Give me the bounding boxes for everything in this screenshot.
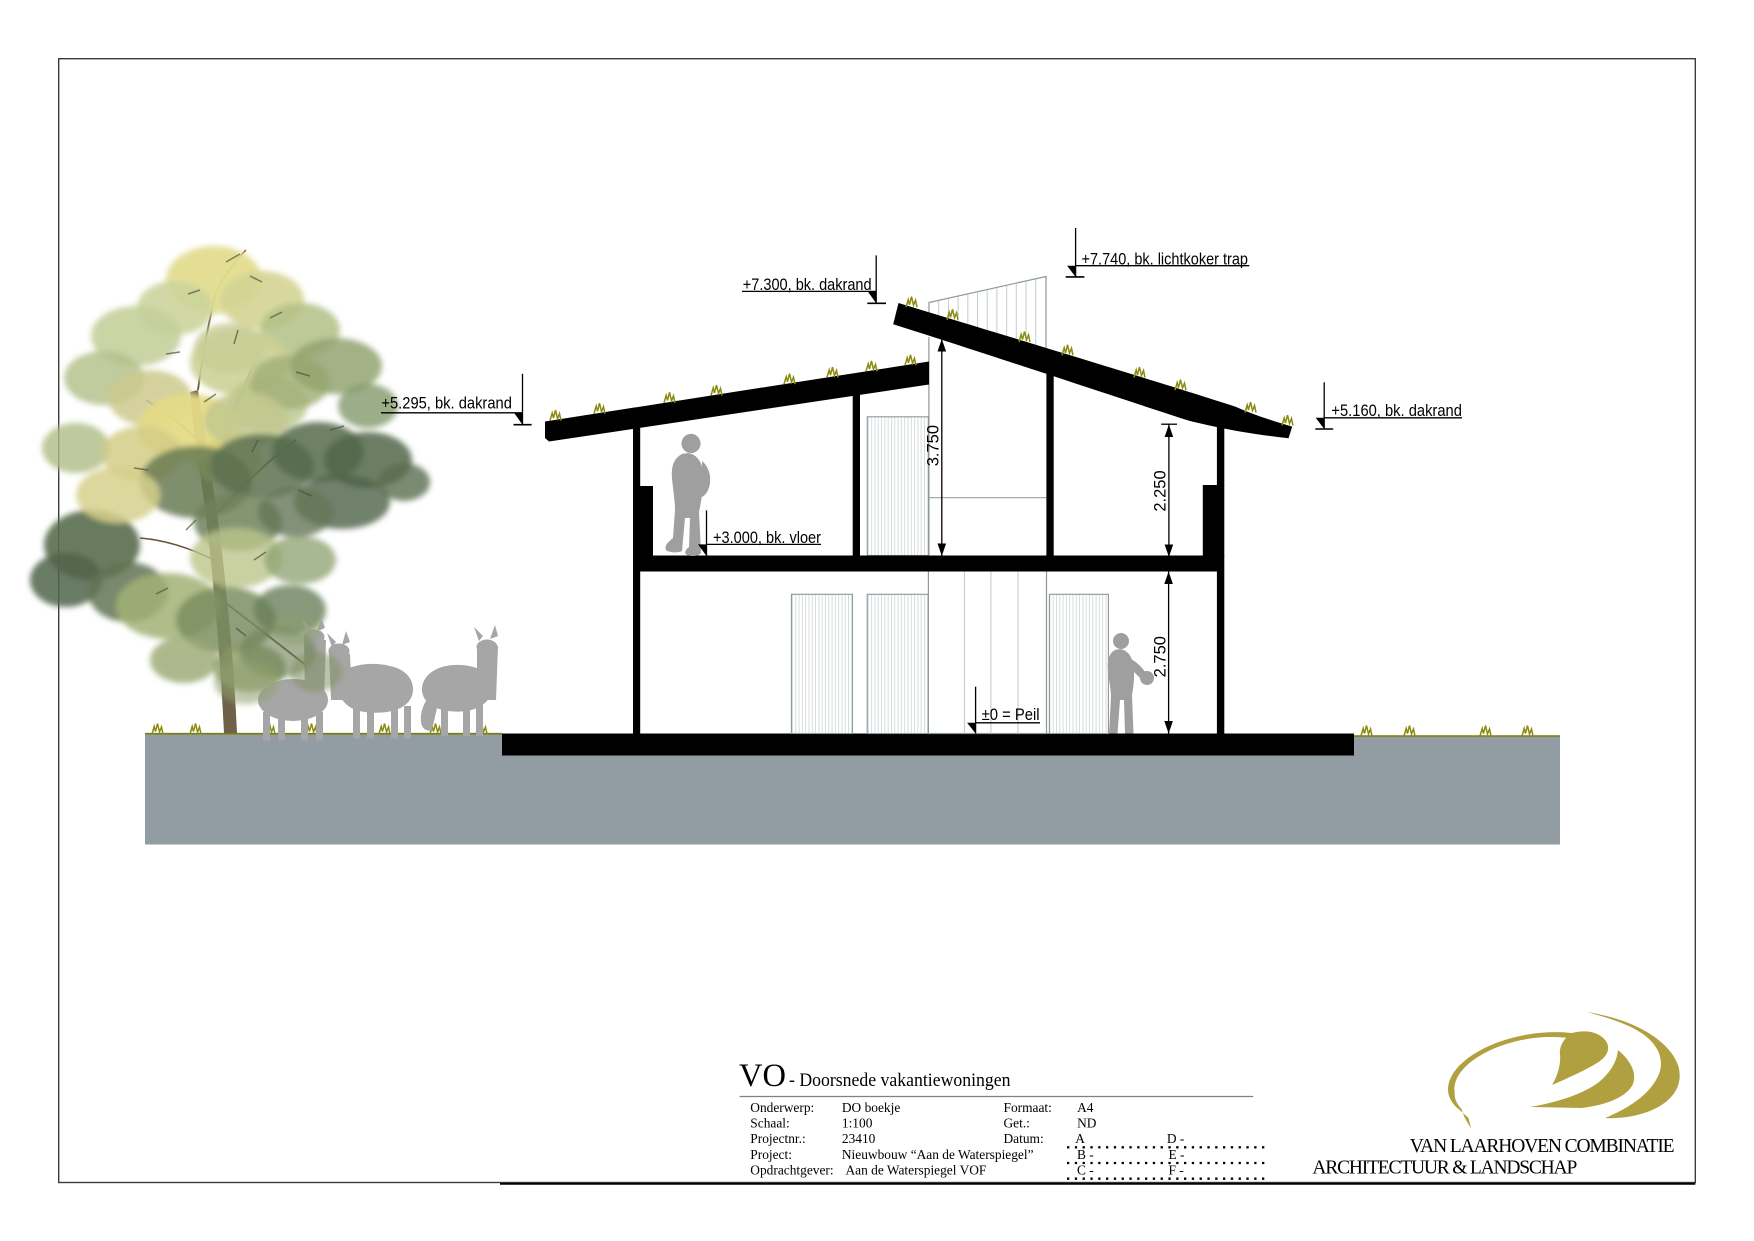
svg-text:C -: C -: [1077, 1163, 1094, 1178]
svg-text:VO: VO: [739, 1058, 786, 1094]
svg-text:1:100: 1:100: [842, 1116, 873, 1131]
svg-text:F -: F -: [1169, 1163, 1184, 1178]
svg-text:D -: D -: [1167, 1131, 1184, 1146]
svg-text:2.750: 2.750: [1151, 636, 1169, 677]
svg-text:Projectnr.:: Projectnr.:: [750, 1131, 805, 1146]
svg-text:B -: B -: [1077, 1147, 1094, 1162]
svg-text:Schaal:: Schaal:: [750, 1116, 789, 1131]
svg-text:Opdrachtgever:: Opdrachtgever:: [750, 1163, 833, 1178]
svg-text:Datum:: Datum:: [1004, 1131, 1044, 1146]
svg-text:Project:: Project:: [750, 1147, 792, 1162]
svg-text:Onderwerp:: Onderwerp:: [750, 1100, 814, 1115]
svg-text:A: A: [1075, 1131, 1085, 1146]
svg-text:A4: A4: [1077, 1100, 1094, 1115]
svg-text:3.750: 3.750: [925, 425, 943, 466]
svg-text:ARCHITECTUUR & LANDSCHAP: ARCHITECTUUR & LANDSCHAP: [1312, 1158, 1577, 1179]
svg-text:E -: E -: [1169, 1147, 1185, 1162]
svg-text:Nieuwbouw “Aan de Waterspiegel: Nieuwbouw “Aan de Waterspiegel”: [842, 1147, 1034, 1162]
svg-text:- Doorsnede vakantiewoningen: - Doorsnede vakantiewoningen: [789, 1070, 1011, 1091]
svg-text:Formaat:: Formaat:: [1004, 1100, 1052, 1115]
svg-text:±0 = Peil: ±0 = Peil: [982, 706, 1040, 724]
svg-text:+5.295, bk. dakrand: +5.295, bk. dakrand: [381, 395, 512, 413]
svg-text:ND: ND: [1077, 1116, 1097, 1131]
svg-text:23410: 23410: [842, 1131, 876, 1146]
svg-text:Get.:: Get.:: [1004, 1116, 1030, 1131]
svg-text:VAN LAARHOVEN COMBINATIE: VAN LAARHOVEN COMBINATIE: [1410, 1136, 1675, 1157]
svg-text:DO boekje: DO boekje: [842, 1100, 900, 1115]
svg-text:2.250: 2.250: [1152, 470, 1170, 511]
svg-text:Aan de Waterspiegel VOF: Aan de Waterspiegel VOF: [846, 1163, 987, 1178]
